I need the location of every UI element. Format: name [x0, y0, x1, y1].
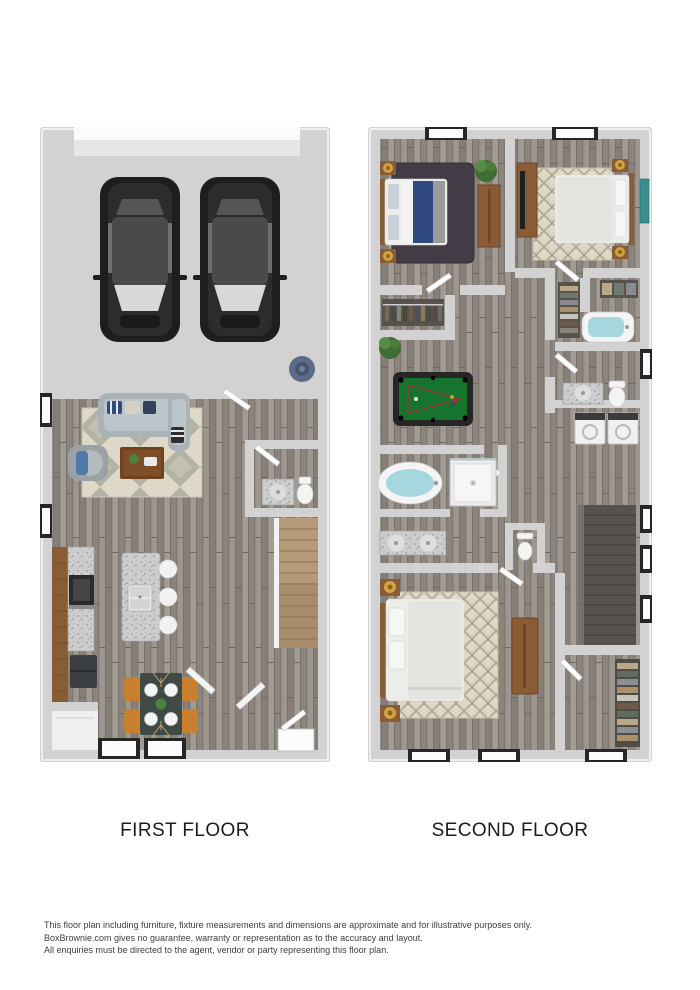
toilet [297, 477, 313, 504]
coffee-table [120, 447, 164, 479]
folded-blanket [433, 181, 445, 243]
plant [379, 337, 401, 359]
tv [520, 171, 525, 229]
pillow [389, 641, 405, 669]
window [478, 749, 520, 762]
dining-chair [124, 709, 141, 733]
armchair [68, 445, 108, 481]
pillow [125, 401, 140, 414]
dresser [478, 185, 500, 247]
bed [380, 599, 464, 701]
window [640, 505, 652, 533]
shower [450, 458, 496, 506]
bar-stool [159, 616, 177, 634]
second-floor-svg [368, 127, 652, 762]
window [144, 738, 186, 759]
plate [145, 684, 158, 697]
pillow [615, 211, 626, 237]
bathtub [582, 312, 634, 342]
refrigerator [70, 655, 97, 688]
first-floor-plan [40, 127, 330, 767]
soaking-tub [378, 462, 442, 504]
pillow [615, 180, 626, 206]
toilet [517, 533, 533, 560]
linen-closet [558, 282, 580, 338]
first-floor-svg [40, 127, 330, 762]
pillow [388, 215, 399, 240]
sink [128, 585, 152, 611]
plant [475, 160, 497, 182]
first-floor-label: FIRST FLOOR [40, 820, 330, 842]
bed [380, 179, 447, 245]
nightstand [612, 246, 628, 259]
stove [69, 575, 94, 609]
staircase [274, 518, 318, 648]
window [40, 504, 52, 538]
disclaimer-line-1: This floor plan including furniture, fix… [44, 919, 532, 932]
bed [555, 173, 634, 245]
pillow [143, 401, 156, 414]
staircase [578, 505, 636, 645]
window [640, 595, 652, 623]
vanity [563, 383, 603, 404]
plate [165, 684, 178, 697]
disclaimer-line-2: BoxBrownie.com gives no guarantee, warra… [44, 932, 532, 945]
second-floor-plan [368, 127, 652, 767]
dresser [512, 618, 538, 694]
dining-chair [124, 677, 141, 701]
pool-table [393, 372, 473, 426]
bar-stool [159, 588, 177, 606]
porch-step [52, 702, 98, 750]
dining-chair [181, 677, 198, 701]
double-vanity [380, 531, 446, 555]
window [98, 738, 140, 759]
kitchen-counter [52, 547, 97, 703]
window [640, 545, 652, 573]
kitchen-island [122, 553, 177, 641]
disclaimer: This floor plan including furniture, fix… [44, 919, 532, 957]
window [425, 127, 467, 140]
window [408, 749, 450, 762]
nightstand [380, 161, 396, 175]
pillow [388, 184, 399, 209]
floorplan-page: FIRST FLOOR SECOND FLOOR This floor plan… [0, 0, 700, 990]
tv-stand [517, 163, 537, 237]
window [552, 127, 598, 140]
plate [165, 713, 178, 726]
window [640, 349, 652, 379]
disclaimer-line-3: All enquiries must be directed to the ag… [44, 944, 532, 957]
bar-stool [159, 560, 177, 578]
plate [145, 713, 158, 726]
nightstand [612, 159, 628, 172]
bed-runner [413, 181, 433, 243]
window [585, 749, 627, 762]
vanity [262, 479, 294, 505]
toilet [609, 381, 625, 407]
wall-art [640, 179, 649, 223]
water-heater [289, 356, 315, 382]
second-floor-label: SECOND FLOOR [368, 820, 652, 842]
garage-door [74, 127, 300, 140]
pillow [107, 401, 122, 414]
pillow [389, 608, 405, 636]
centerpiece-plant [156, 699, 167, 710]
nightstand [380, 705, 400, 722]
nightstand [380, 249, 396, 263]
nightstand [380, 579, 400, 596]
car [93, 177, 187, 342]
garage [52, 127, 318, 385]
window [40, 393, 52, 427]
shelf-closet [600, 280, 638, 298]
closet-hanging [382, 299, 444, 326]
dining-chair [181, 709, 198, 733]
car [193, 177, 287, 342]
